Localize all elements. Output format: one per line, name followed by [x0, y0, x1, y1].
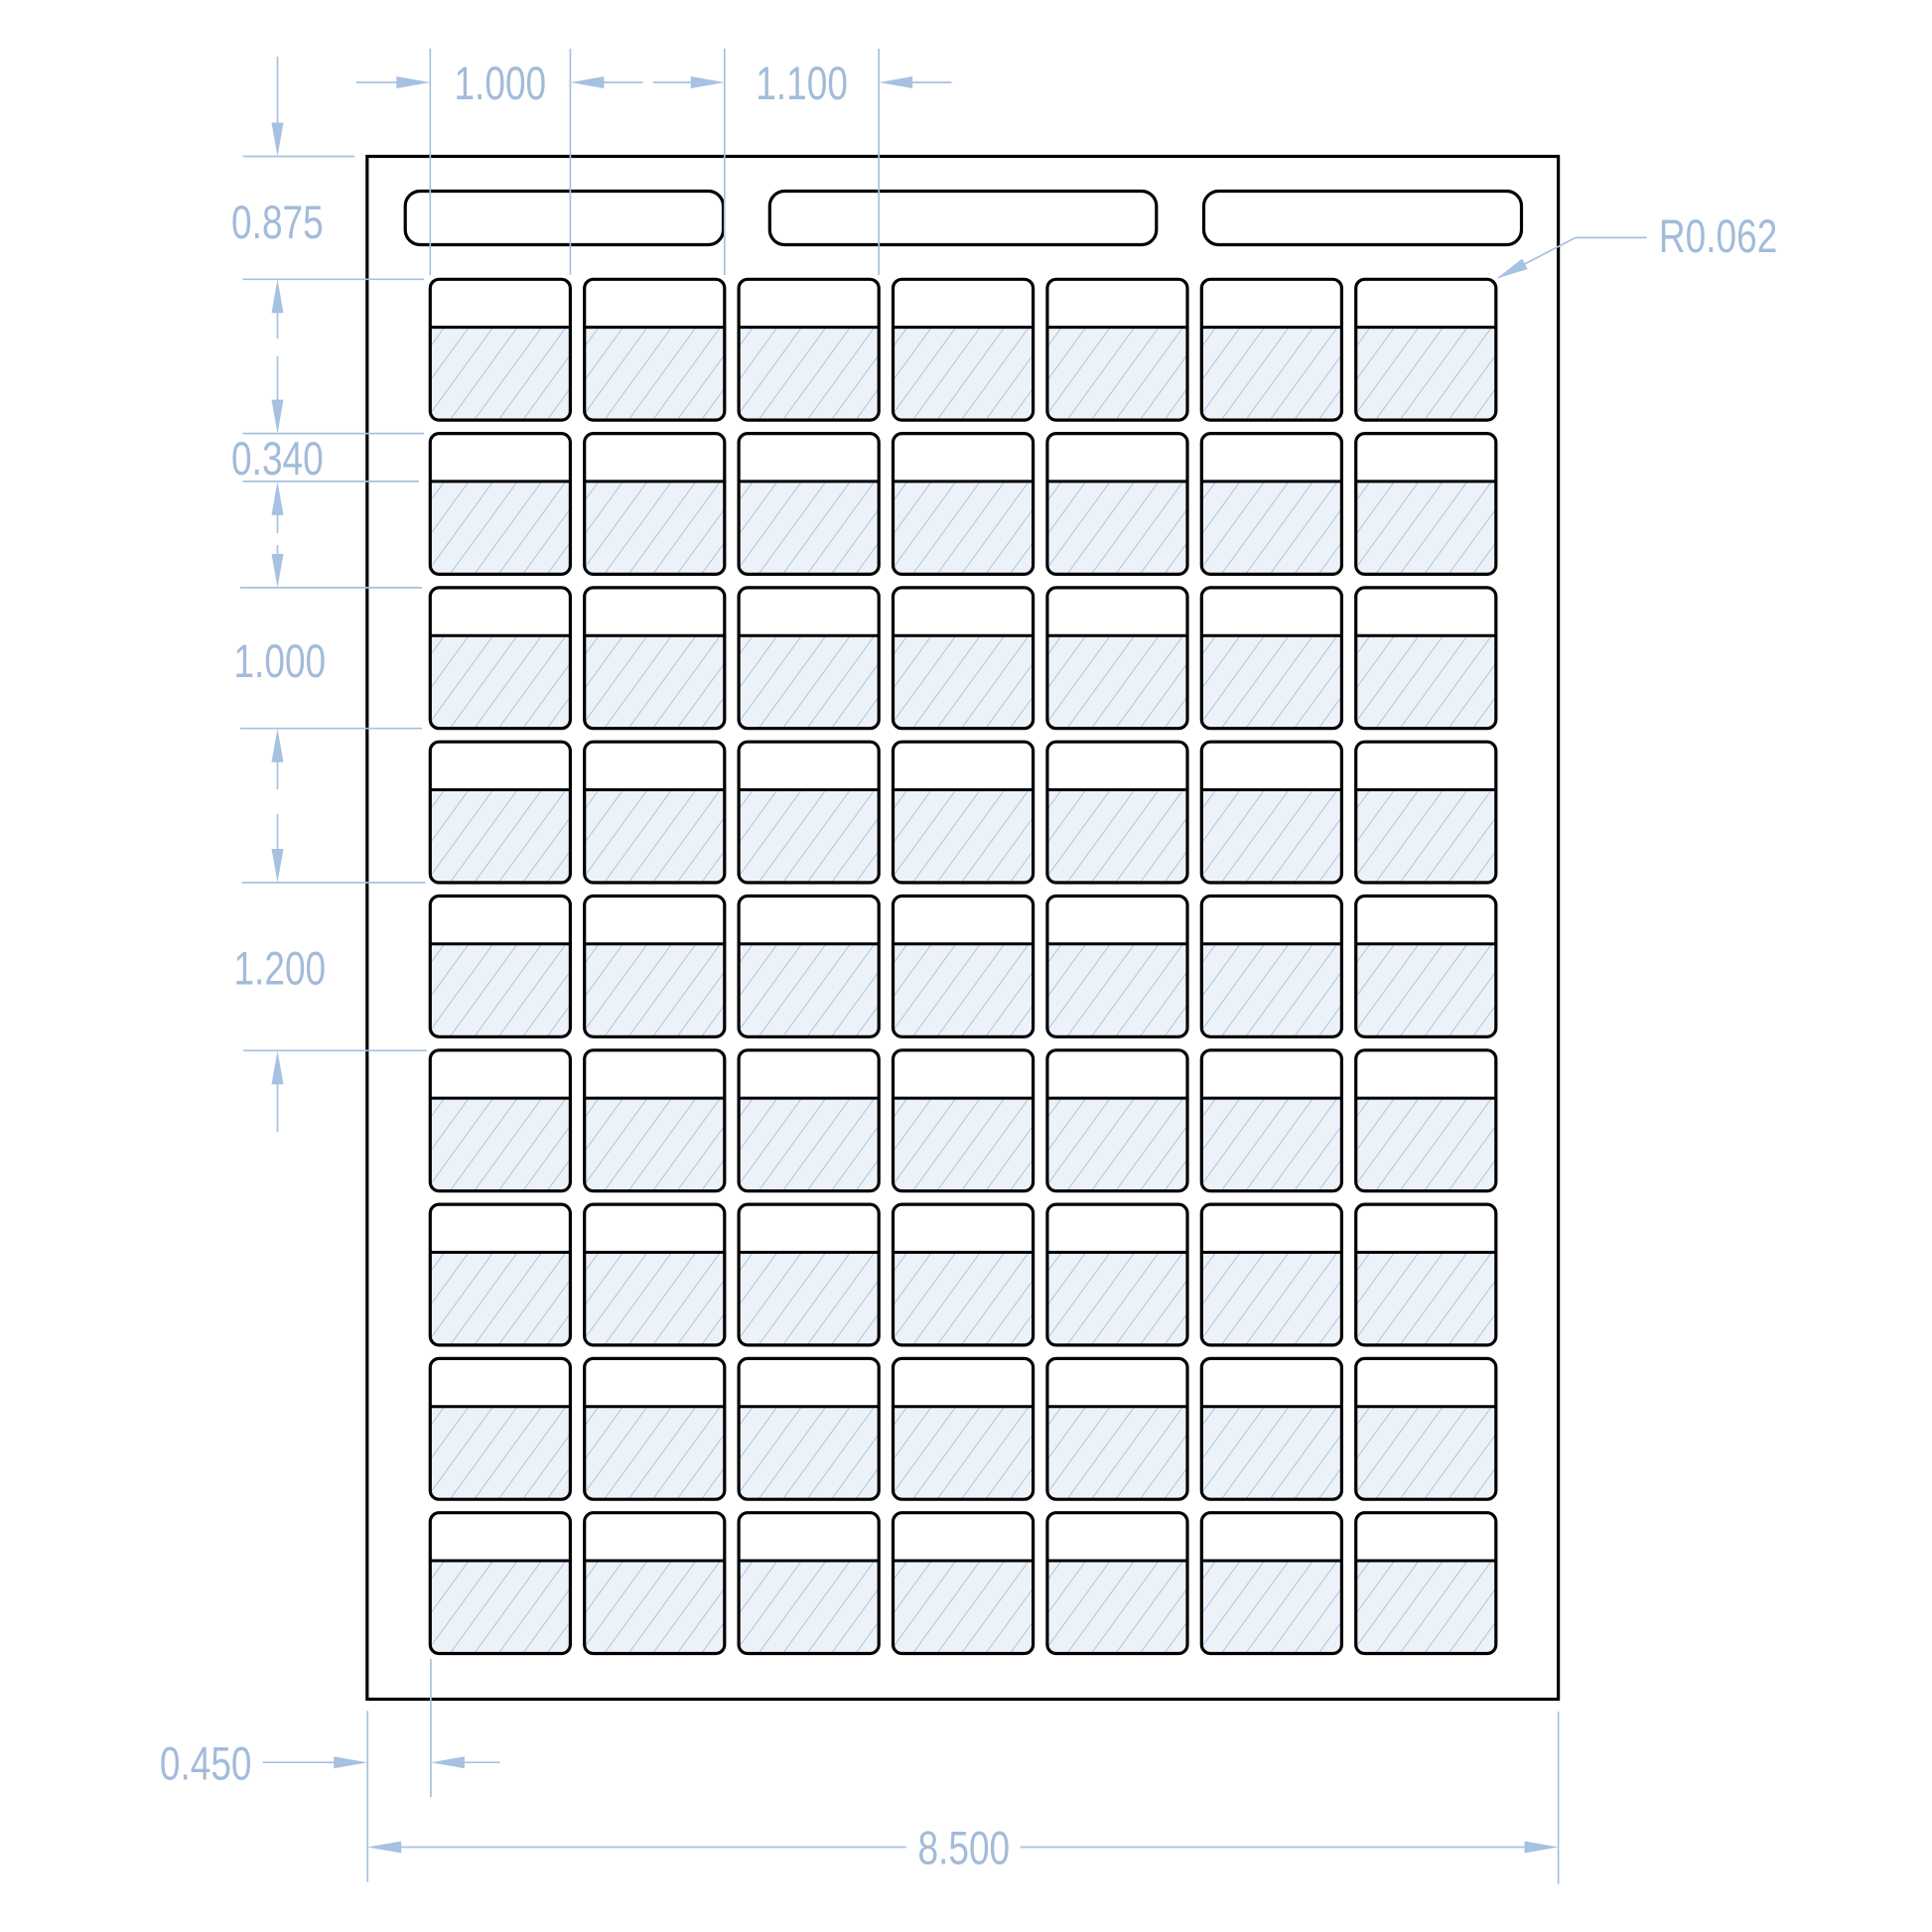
svg-text:1.000: 1.000 [454, 58, 546, 111]
svg-text:8.500: 8.500 [917, 1822, 1010, 1875]
svg-text:0.450: 0.450 [160, 1737, 252, 1791]
svg-text:0.875: 0.875 [231, 197, 324, 250]
svg-text:0.340: 0.340 [231, 432, 324, 485]
svg-text:1.000: 1.000 [233, 634, 326, 688]
svg-text:R0.062: R0.062 [1659, 209, 1777, 263]
svg-text:1.200: 1.200 [233, 942, 326, 996]
svg-text:1.100: 1.100 [756, 58, 848, 111]
